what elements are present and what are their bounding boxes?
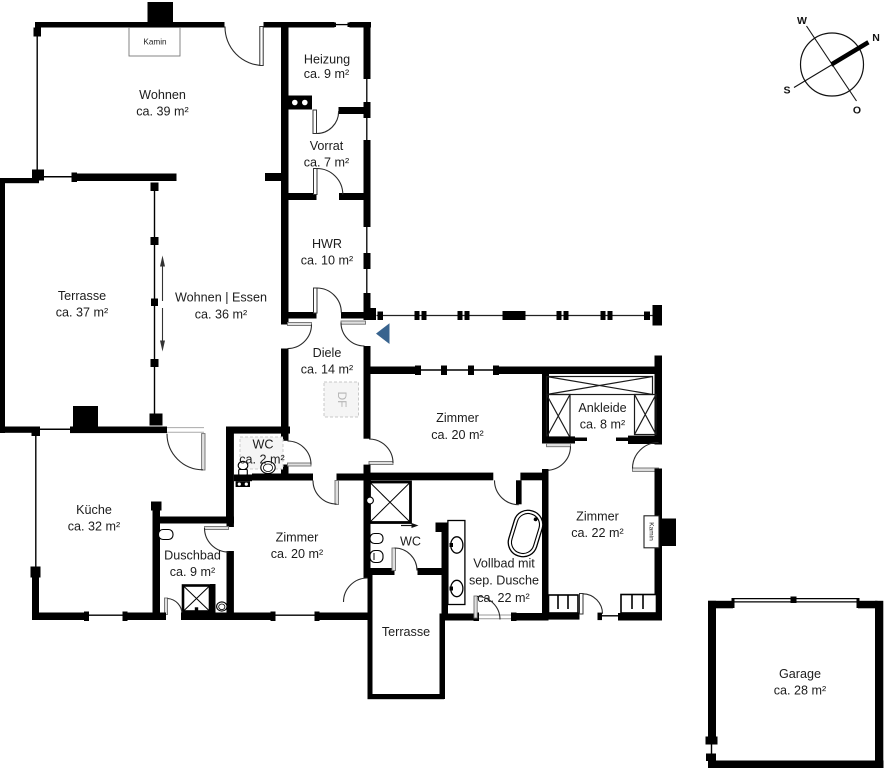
svg-text:ca. 20 m²: ca. 20 m²: [271, 547, 324, 561]
svg-text:ca. 37 m²: ca. 37 m²: [56, 306, 109, 320]
svg-text:Zimmer: Zimmer: [436, 411, 479, 425]
svg-text:Vorrat: Vorrat: [310, 139, 344, 153]
svg-text:Ankleide: Ankleide: [578, 401, 626, 415]
svg-text:ca. 22 m²: ca. 22 m²: [477, 591, 530, 605]
svg-text:Diele: Diele: [313, 346, 342, 360]
svg-text:Garage: Garage: [779, 667, 821, 681]
svg-text:Zimmer: Zimmer: [576, 510, 619, 524]
svg-text:Terrasse: Terrasse: [58, 289, 106, 303]
svg-text:ca. 9 m²: ca. 9 m²: [170, 565, 216, 579]
svg-text:Zimmer: Zimmer: [276, 531, 319, 545]
svg-text:ca. 8 m²: ca. 8 m²: [580, 418, 626, 432]
svg-text:ca. 20 m²: ca. 20 m²: [431, 428, 484, 442]
svg-text:ca. 9 m²: ca. 9 m²: [304, 67, 350, 81]
svg-text:WC: WC: [400, 535, 421, 549]
svg-text:ca. 7 m²: ca. 7 m²: [304, 156, 350, 170]
svg-text:ca. 28 m²: ca. 28 m²: [774, 684, 827, 698]
svg-text:ca. 2 m²: ca. 2 m²: [239, 453, 285, 467]
svg-text:sep. Dusche: sep. Dusche: [469, 574, 539, 588]
svg-text:Wohnen: Wohnen: [139, 88, 186, 102]
svg-text:Vollbad mit: Vollbad mit: [473, 557, 535, 571]
svg-text:Küche: Küche: [76, 503, 112, 517]
svg-text:Wohnen | Essen: Wohnen | Essen: [175, 291, 267, 305]
svg-text:HWR: HWR: [312, 237, 342, 251]
svg-text:Kamin: Kamin: [647, 522, 654, 541]
svg-text:WC: WC: [253, 438, 274, 452]
svg-text:ca. 32 m²: ca. 32 m²: [68, 520, 121, 534]
svg-text:ca. 36 m²: ca. 36 m²: [195, 308, 248, 322]
svg-text:N: N: [872, 32, 880, 44]
svg-text:ca. 22 m²: ca. 22 m²: [571, 526, 624, 540]
svg-text:Terrasse: Terrasse: [382, 625, 430, 639]
svg-text:Heizung: Heizung: [304, 53, 350, 67]
svg-text:S: S: [783, 85, 790, 97]
svg-text:Duschbad: Duschbad: [164, 549, 221, 563]
svg-text:DF: DF: [335, 392, 349, 408]
svg-text:ca. 14 m²: ca. 14 m²: [301, 363, 354, 377]
svg-text:O: O: [853, 105, 861, 117]
svg-text:ca. 39 m²: ca. 39 m²: [136, 105, 189, 119]
svg-text:W: W: [797, 15, 807, 27]
svg-text:Kamin: Kamin: [143, 38, 167, 47]
svg-text:ca. 10 m²: ca. 10 m²: [301, 254, 354, 268]
